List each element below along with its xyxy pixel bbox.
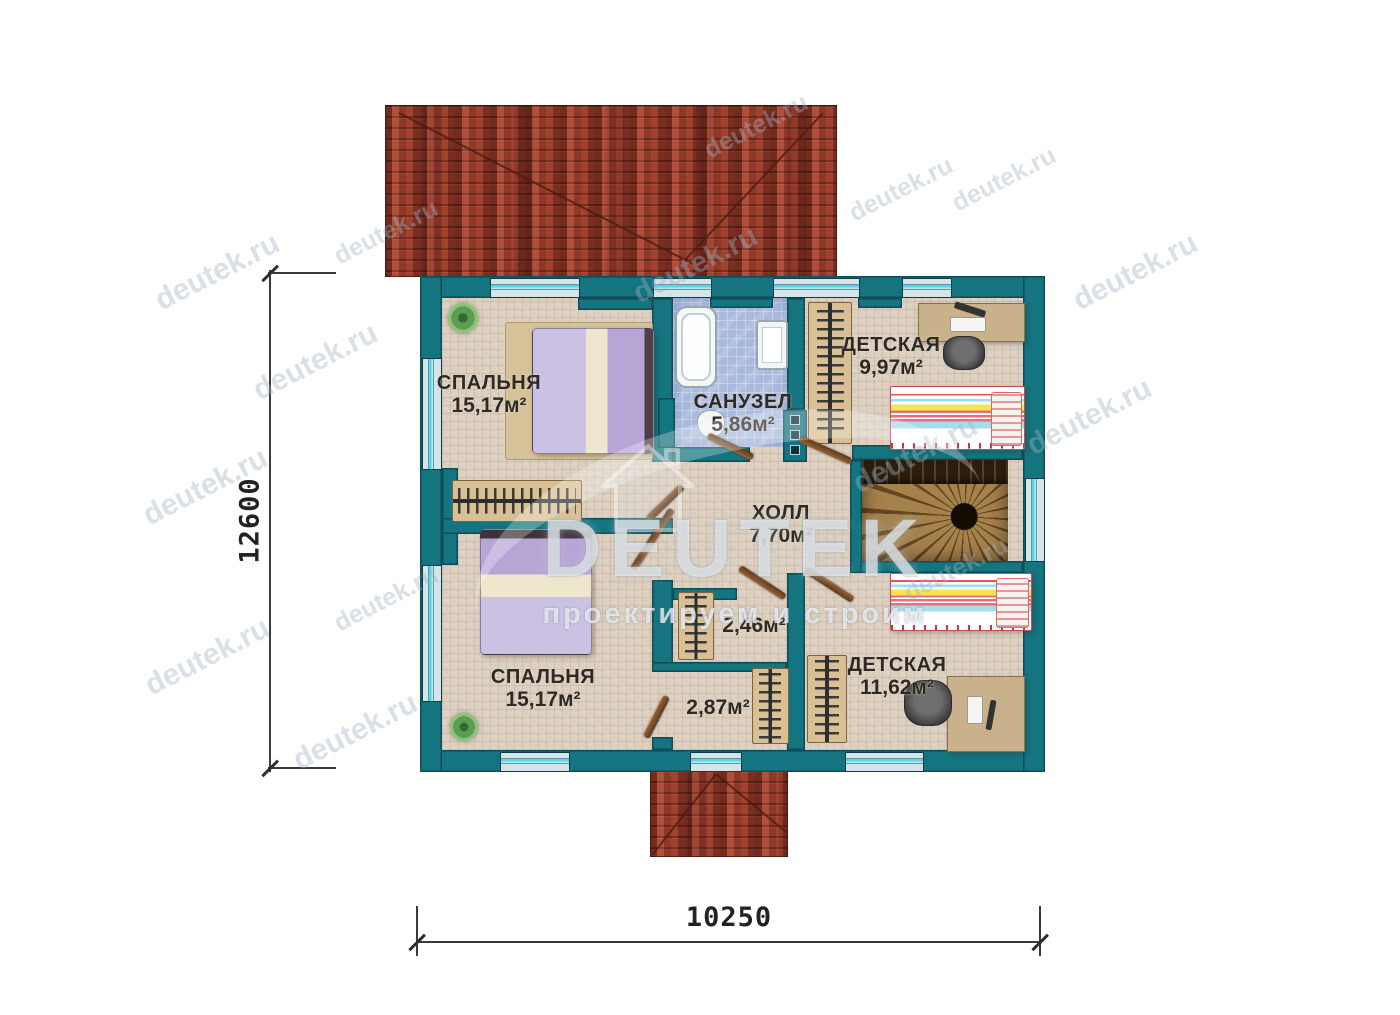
wall-pier <box>578 298 653 310</box>
dim-tick <box>268 767 336 769</box>
watermark: deutek.ru <box>845 151 958 228</box>
wall-deco <box>790 445 800 455</box>
window <box>1025 478 1045 562</box>
room-name: СПАЛЬНЯ <box>482 666 604 688</box>
bathtub <box>675 306 717 388</box>
watermark: deutek.ru <box>288 686 424 778</box>
window <box>845 752 924 772</box>
watermark: deutek.ru <box>248 316 384 408</box>
wall <box>652 580 673 672</box>
room-label-bedroom-2: СПАЛЬНЯ 15,17м² <box>482 666 604 712</box>
kids-bed <box>890 573 1032 631</box>
dim-line-horizontal <box>417 941 1041 943</box>
plant <box>450 713 478 741</box>
main-roof <box>385 105 837 277</box>
floor-plan: СПАЛЬНЯ 15,17м² СПАЛЬНЯ 15,17м² САНУЗЕЛ … <box>420 276 1045 772</box>
room-label-closet-1: 2,46м² <box>714 614 794 638</box>
wall <box>850 460 862 573</box>
wall-niche <box>658 398 675 448</box>
room-area: 5,86м² <box>690 413 796 437</box>
kids-bed <box>890 386 1025 450</box>
window <box>902 278 952 298</box>
wall-pier <box>858 298 902 308</box>
window <box>773 278 860 298</box>
porch-hip-lines <box>650 770 788 857</box>
wall <box>787 573 805 750</box>
porch-roof <box>650 770 788 857</box>
monitor <box>967 696 983 724</box>
window <box>422 565 442 702</box>
room-area: 15,17м² <box>428 394 550 418</box>
room-label-closet-2: 2,87м² <box>678 696 758 720</box>
room-name: СПАЛЬНЯ <box>428 372 550 394</box>
roof-hip-lines <box>385 105 837 277</box>
watermark: deutek.ru <box>150 226 286 318</box>
sink <box>756 320 788 370</box>
room-name: ХОЛЛ <box>725 502 837 524</box>
room-area: 7,70м² <box>725 524 837 548</box>
laptop <box>950 317 986 332</box>
office-chair <box>943 336 985 370</box>
room-label-kids-1: ДЕТСКАЯ 9,97м² <box>835 334 947 380</box>
room-area: 2,87м² <box>678 696 758 720</box>
window <box>500 752 570 772</box>
wall <box>860 561 1023 573</box>
room-area: 11,62м² <box>838 676 956 700</box>
room-name: ДЕТСКАЯ <box>838 654 956 676</box>
watermark: deutek.ru <box>948 141 1061 218</box>
wall <box>652 737 673 750</box>
dim-value-vertical: 12600 <box>235 441 266 601</box>
staircase-landing <box>862 460 1008 484</box>
desk <box>947 676 1025 752</box>
wall-pier <box>710 298 773 308</box>
double-bed <box>532 328 654 454</box>
double-bed <box>480 529 592 655</box>
room-label-bathroom: САНУЗЕЛ 5,86м² <box>690 391 796 437</box>
room-label-bedroom-1: СПАЛЬНЯ 15,17м² <box>428 372 550 418</box>
floor-plan-page: СПАЛЬНЯ 15,17м² СПАЛЬНЯ 15,17м² САНУЗЕЛ … <box>0 0 1400 1015</box>
room-area: 2,46м² <box>714 614 794 638</box>
window <box>490 278 580 298</box>
window <box>690 752 742 772</box>
wardrobe-rack <box>452 480 582 522</box>
watermark: deutek.ru <box>1068 226 1204 318</box>
dim-value-horizontal: 10250 <box>417 902 1041 933</box>
window <box>653 278 712 298</box>
room-name: ДЕТСКАЯ <box>835 334 947 356</box>
watermark: deutek.ru <box>140 611 276 703</box>
dim-line-vertical <box>269 270 271 772</box>
wardrobe-rack <box>678 592 714 660</box>
dim-tick <box>268 272 336 274</box>
room-label-hall: ХОЛЛ 7,70м² <box>725 502 837 548</box>
room-area: 9,97м² <box>835 356 947 380</box>
room-label-kids-2: ДЕТСКАЯ 11,62м² <box>838 654 956 700</box>
plant <box>448 303 478 333</box>
room-area: 15,17м² <box>482 688 604 712</box>
room-name: САНУЗЕЛ <box>690 391 796 413</box>
